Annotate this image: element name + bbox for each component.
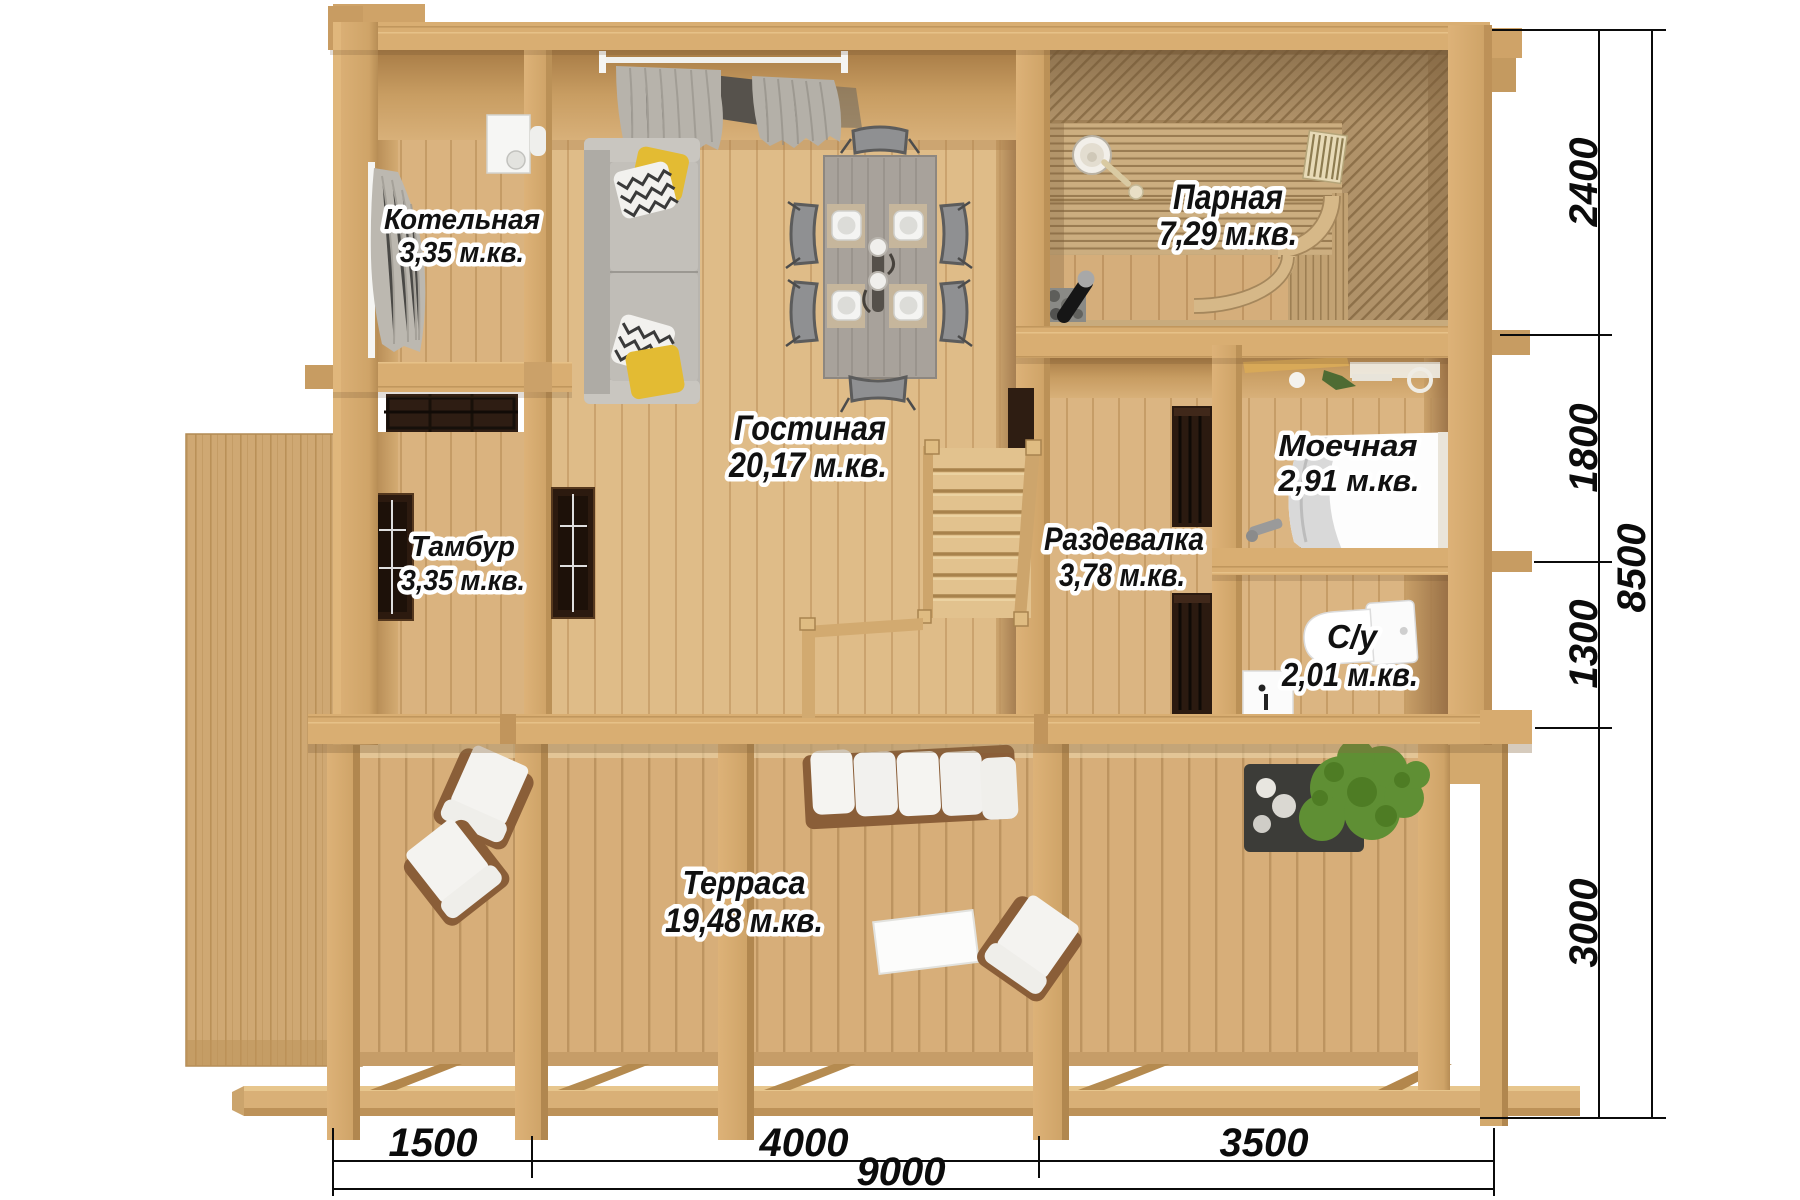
svg-text:20,17 м.кв.: 20,17 м.кв.	[728, 446, 887, 485]
svg-text:3500: 3500	[1220, 1121, 1309, 1165]
svg-text:9000: 9000	[857, 1150, 946, 1194]
svg-text:1800: 1800	[1562, 404, 1606, 493]
svg-text:Раздевалка: Раздевалка	[1044, 521, 1204, 557]
svg-text:Парная: Парная	[1173, 178, 1283, 217]
svg-text:Тамбур: Тамбур	[411, 531, 515, 563]
svg-text:Гостиная: Гостиная	[734, 409, 886, 448]
svg-text:1500: 1500	[389, 1121, 478, 1165]
svg-text:3,78 м.кв.: 3,78 м.кв.	[1059, 557, 1185, 593]
svg-text:2,01 м.кв.: 2,01 м.кв.	[1281, 656, 1418, 693]
svg-text:1300: 1300	[1562, 600, 1606, 689]
svg-text:8500: 8500	[1610, 524, 1654, 613]
svg-text:2400: 2400	[1562, 138, 1606, 228]
svg-text:4000: 4000	[759, 1121, 849, 1165]
svg-text:3,35 м.кв.: 3,35 м.кв.	[400, 237, 524, 269]
svg-text:3,35 м.кв.: 3,35 м.кв.	[401, 565, 525, 597]
svg-text:Котельная: Котельная	[384, 204, 540, 236]
svg-text:7,29 м.кв.: 7,29 м.кв.	[1159, 215, 1297, 253]
svg-text:3000: 3000	[1562, 879, 1606, 968]
svg-text:19,48 м.кв.: 19,48 м.кв.	[665, 902, 823, 940]
svg-text:С/у: С/у	[1327, 618, 1379, 655]
svg-text:Моечная: Моечная	[1279, 428, 1418, 463]
svg-text:Терраса: Терраса	[683, 864, 806, 901]
svg-text:2,91 м.кв.: 2,91 м.кв.	[1278, 463, 1420, 498]
